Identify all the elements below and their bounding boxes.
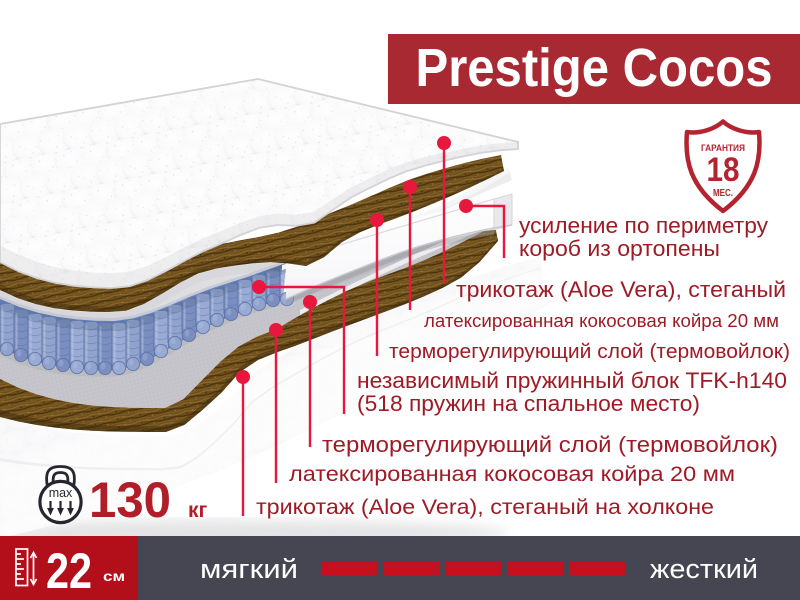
svg-text:жесткий: жесткий [650, 554, 758, 584]
svg-text:латексированная кокосовая койр: латексированная кокосовая койра 20 мм [424, 311, 779, 331]
svg-text:короб из ортопены: короб из ортопены [519, 236, 720, 261]
svg-text:22: 22 [46, 543, 92, 599]
svg-text:МЕС.: МЕС. [713, 188, 733, 199]
svg-text:см: см [103, 569, 125, 584]
svg-text:трикотаж (Aloe Vera), стеганый: трикотаж (Aloe Vera), стеганый [456, 277, 786, 302]
svg-text:терморегулирующий слой (термов: терморегулирующий слой (термовойлок) [322, 432, 778, 457]
svg-text:Prestige Cocos: Prestige Cocos [416, 38, 773, 98]
svg-text:130: 130 [89, 472, 171, 528]
svg-text:независимый пружинный блок TFK: независимый пружинный блок TFK-h140 [357, 368, 787, 393]
svg-text:усиление по периметру: усиление по периметру [519, 213, 768, 238]
svg-text:кг: кг [188, 499, 208, 522]
svg-text:латексированная кокосовая койр: латексированная кокосовая койра 20 мм [289, 463, 735, 486]
svg-text:(518 пружин на спальное место): (518 пружин на спальное место) [357, 391, 700, 416]
svg-text:мягкий: мягкий [200, 554, 298, 584]
svg-text:трикотаж (Aloe Vera), стеганый: трикотаж (Aloe Vera), стеганый на холкон… [256, 496, 714, 519]
svg-text:18: 18 [707, 151, 740, 189]
svg-text:max: max [49, 486, 73, 500]
svg-text:терморегулирующий слой (термов: терморегулирующий слой (термовойлок) [389, 341, 790, 363]
